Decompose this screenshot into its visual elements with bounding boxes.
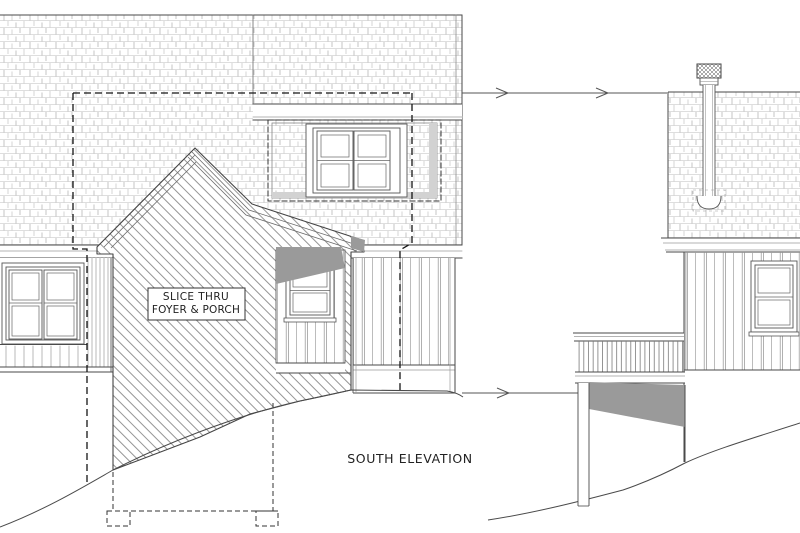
slice-label-line1: SLICE THRU [163, 291, 229, 303]
dormer-fascia-band [253, 104, 462, 120]
ground-line-right [488, 423, 800, 520]
deck-post [578, 383, 589, 506]
right-building [573, 64, 800, 506]
elevation-drawing-sheet: SLICE THRU FOYER & PORCH [0, 0, 800, 533]
right-eave-fascia [661, 238, 800, 252]
panel-shade-right [429, 123, 437, 198]
middle-wall [353, 258, 455, 393]
chimney-cap [697, 64, 721, 78]
deck-section-shade [589, 382, 685, 427]
section-arrow-upper [462, 88, 667, 98]
deck-balusters [576, 341, 684, 372]
slice-label-line2: FOYER & PORCH [152, 304, 240, 316]
footing-left [107, 511, 130, 526]
footing-right [256, 511, 278, 526]
right-window [749, 261, 799, 336]
right-roof-shingles [668, 92, 800, 238]
elevation-title: SOUTH ELEVATION [347, 451, 473, 466]
elevation-drawing: SLICE THRU FOYER & PORCH [0, 0, 800, 533]
slice-label-box: SLICE THRU FOYER & PORCH [148, 288, 245, 320]
left-window [0, 263, 86, 345]
dormer-window [306, 124, 407, 197]
deck-railing [573, 333, 685, 383]
